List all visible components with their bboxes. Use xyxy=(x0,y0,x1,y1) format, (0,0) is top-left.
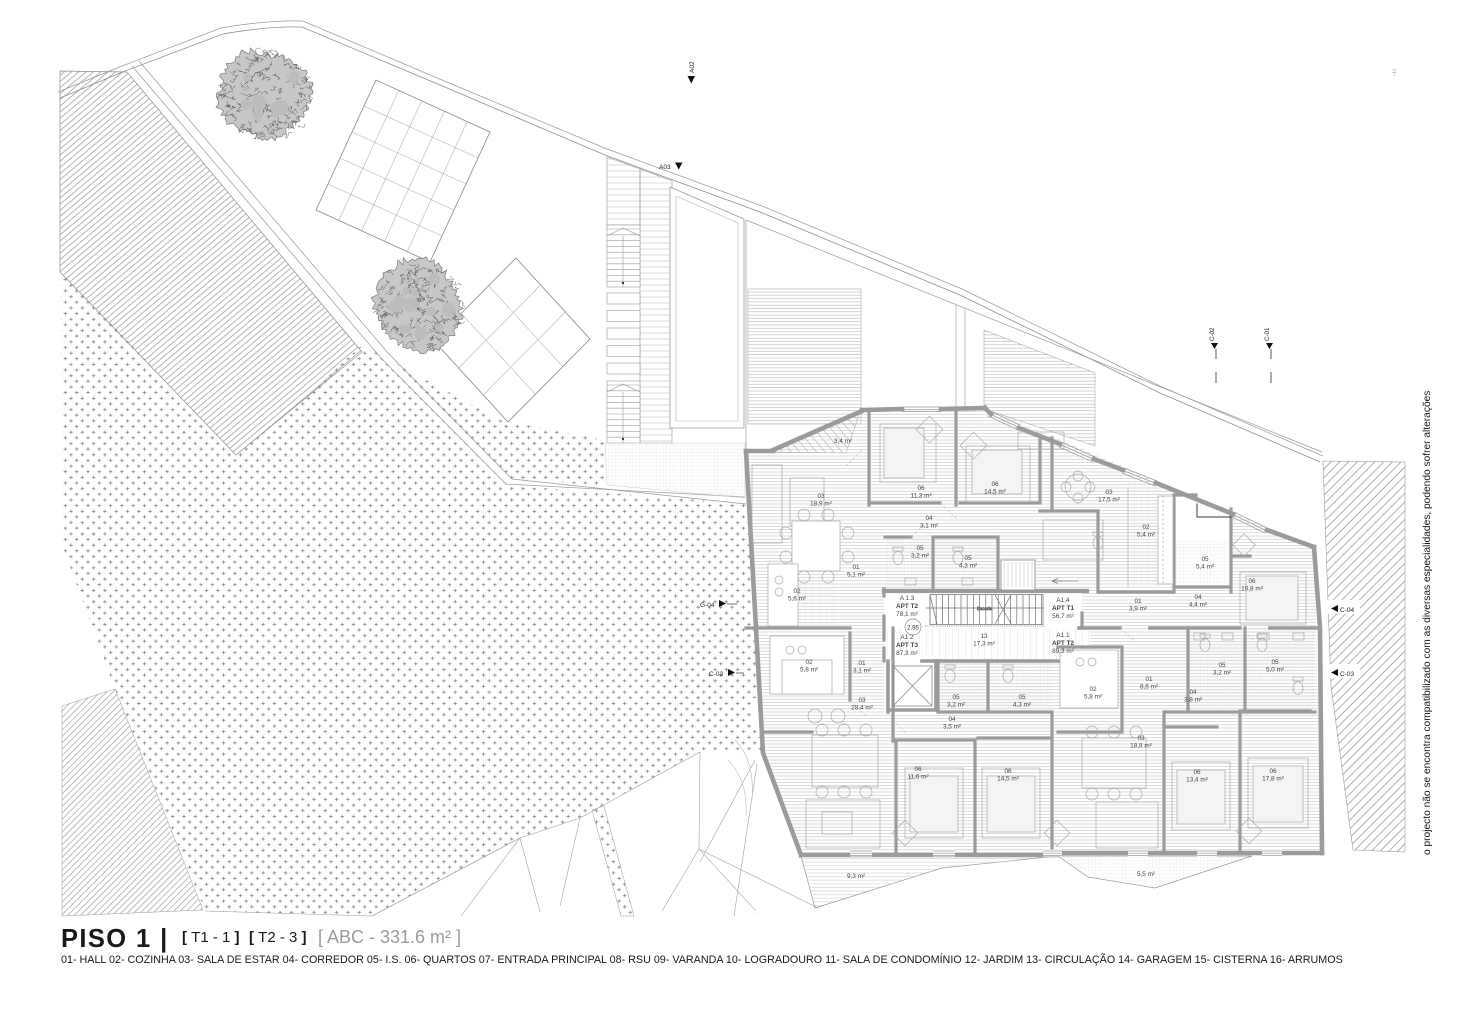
svg-text:[ ABC - 331.6 m² ]: [ ABC - 331.6 m² ] xyxy=(318,927,461,947)
svg-text:01- HALL 02- COZINHA 03- SALA: 01- HALL 02- COZINHA 03- SALA DE ESTAR 0… xyxy=(61,953,1343,966)
svg-text:A03: A03 xyxy=(659,164,671,171)
svg-text:C-03: C-03 xyxy=(709,671,723,678)
svg-text:Escada: Escada xyxy=(977,606,993,611)
svg-text:[ T2 - 3 ]: [ T2 - 3 ] xyxy=(249,929,307,946)
svg-text:- i.i: - i.i xyxy=(1392,69,1398,76)
svg-text:PISO 1 |: PISO 1 | xyxy=(61,925,169,953)
svg-text:56,7 m²: 56,7 m² xyxy=(1052,613,1074,620)
svg-text:[ T1 - 1 ]: [ T1 - 1 ] xyxy=(182,929,240,946)
svg-text:89,3 m²: 89,3 m² xyxy=(1052,648,1074,655)
svg-text:2.95: 2.95 xyxy=(907,626,919,632)
svg-text:APT T1: APT T1 xyxy=(1052,605,1074,612)
svg-text:o projecto não se encontra com: o projecto não se encontra compatibiliza… xyxy=(1422,391,1433,855)
svg-text:C-03: C-03 xyxy=(1340,671,1354,678)
svg-text:G-04: G-04 xyxy=(700,602,715,609)
svg-text:C-01: C-01 xyxy=(1264,327,1271,341)
svg-text:A02: A02 xyxy=(689,61,696,73)
svg-text:A 1.3: A 1.3 xyxy=(900,595,915,602)
svg-text:9,3 m²: 9,3 m² xyxy=(847,873,865,880)
svg-text:A1.2: A1.2 xyxy=(900,634,914,641)
svg-text:87,3 m²: 87,3 m² xyxy=(896,650,918,657)
svg-text:3,4 m²: 3,4 m² xyxy=(834,438,852,445)
svg-text:5,5 m²: 5,5 m² xyxy=(1137,871,1155,878)
svg-text:APT T2: APT T2 xyxy=(896,603,918,610)
svg-text:C-02: C-02 xyxy=(1209,327,1216,341)
svg-text:APT T3: APT T3 xyxy=(896,642,918,649)
svg-text:78,1 m²: 78,1 m² xyxy=(896,611,918,618)
svg-text:A1.1: A1.1 xyxy=(1056,632,1070,639)
svg-text:A1.4: A1.4 xyxy=(1056,597,1070,604)
svg-text:C-04: C-04 xyxy=(1340,607,1354,614)
svg-text:APT T2: APT T2 xyxy=(1052,640,1074,647)
